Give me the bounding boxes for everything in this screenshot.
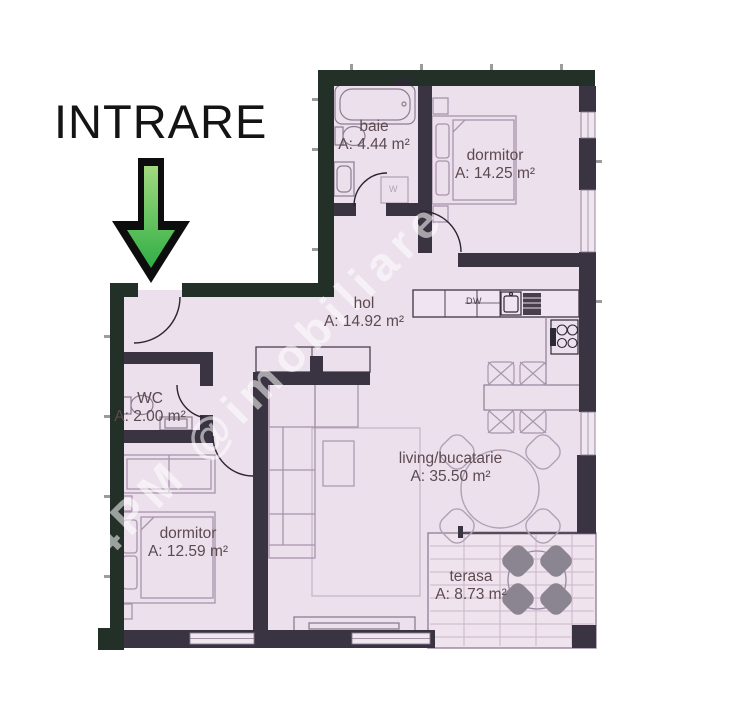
- fridge: [523, 293, 541, 315]
- room-label-baie: baie A: 4.44 m²: [314, 118, 434, 154]
- terrace-door-jamb: [458, 526, 463, 538]
- hallway-cabinet: [256, 347, 370, 372]
- room-label-terasa: terasa A: 8.73 m²: [411, 568, 531, 604]
- room-label-living: living/bucatarie A: 35.50 m²: [378, 450, 523, 486]
- washer-label: W: [389, 184, 398, 194]
- dishwasher-label: DW: [466, 296, 482, 306]
- room-label-dormitor-2: dormitor A: 12.59 m²: [128, 525, 248, 561]
- floor-plan: INTRARE 4PM @imobiliare baie A: 4.44 m² …: [0, 0, 731, 708]
- stove: [550, 320, 578, 354]
- room-label-hol: hol A: 14.92 m²: [304, 295, 424, 331]
- room-label-dormitor-1: dormitor A: 14.25 m²: [435, 147, 555, 183]
- entrance-arrow-icon: [112, 158, 190, 283]
- room-label-wc: WC A: 2.00 m²: [90, 390, 210, 426]
- entrance-label: INTRARE: [54, 94, 274, 149]
